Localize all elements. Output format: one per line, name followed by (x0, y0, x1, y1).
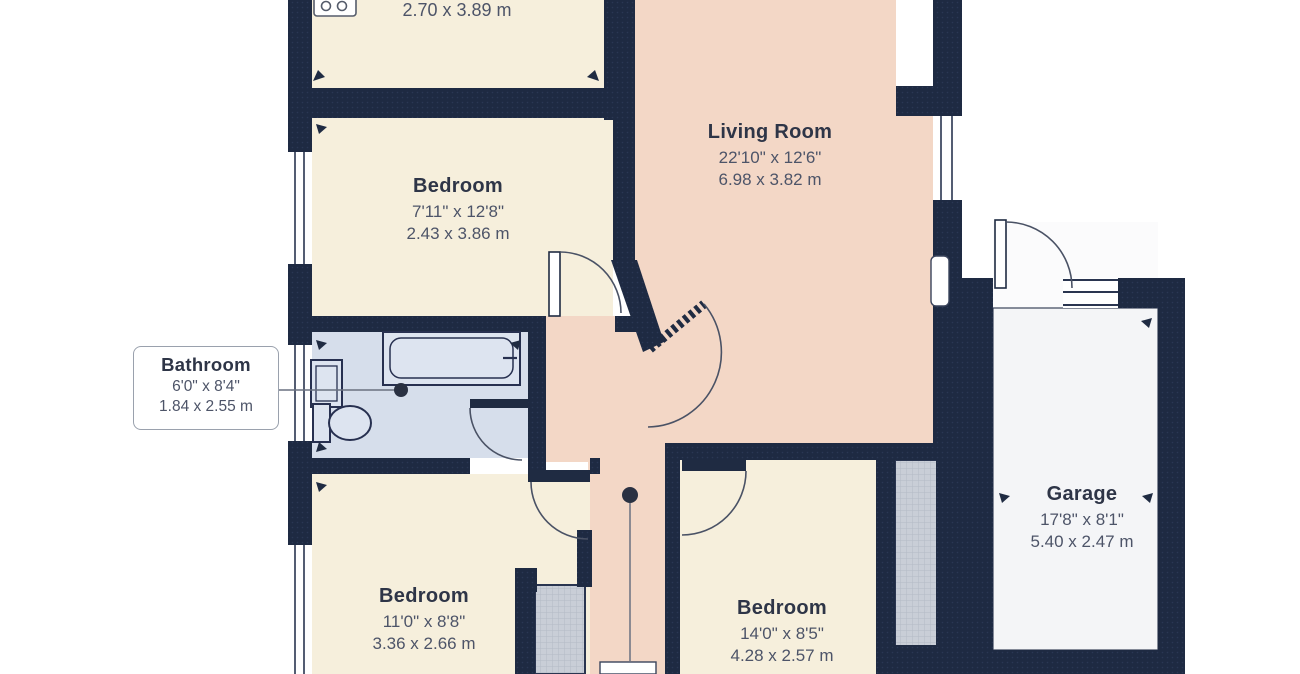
wall-kitchen-south (288, 88, 635, 118)
wall-bathroom-south-a (288, 458, 470, 474)
wall-east-upper (933, 0, 962, 443)
window-bedroom2 (288, 545, 312, 674)
floorplan-canvas: 2.70 x 3.89 m Living Room 22'10" x 12'6"… (0, 0, 1300, 674)
door-leaf-bedroom1 (549, 252, 560, 316)
exterior-notch (896, 0, 933, 86)
window-livingroom (933, 116, 962, 200)
room-bedroom1-floor (312, 118, 613, 316)
wall-bedroom2-east (515, 585, 535, 674)
wall-garage-east (1158, 278, 1185, 674)
bathroom-metric: 1.84 x 2.55 m (134, 397, 278, 417)
bathroom-label: Bathroom 6'0" x 8'4" 1.84 x 2.55 m (133, 346, 279, 430)
hall-leader-dot (622, 487, 638, 503)
wardrobe-left (535, 585, 585, 674)
wall-corridor-east (665, 443, 680, 674)
room-garage-floor (993, 308, 1158, 650)
wall-bedroom3-east (876, 460, 895, 674)
wall-east-lower (936, 443, 962, 674)
floorplan-drawing (0, 0, 1300, 674)
door-recess-living-east (931, 256, 949, 306)
door-leaf-bedroom3 (682, 460, 746, 471)
wardrobe-right (895, 460, 938, 648)
wall-garage-south (962, 650, 1185, 674)
window-bedroom1 (288, 152, 312, 264)
toilet-bowl (329, 406, 371, 440)
wall-chimney-stub (896, 86, 937, 116)
bathroom-name: Bathroom (134, 354, 278, 375)
door-leaf-bathroom (470, 399, 528, 408)
wall-hall-stub (615, 316, 643, 332)
bathroom-leader-dot (394, 383, 408, 397)
wall-bathroom-east (528, 316, 546, 476)
window-bathroom (288, 345, 312, 441)
door-leaf-bedroom2 (528, 470, 590, 482)
room-bedroom3-floor (680, 460, 876, 674)
hob-icon (314, 0, 356, 16)
wall-garage-west (962, 278, 993, 674)
wall-living-south (665, 443, 962, 460)
bathroom-imperial: 6'0" x 8'4" (134, 377, 278, 397)
toilet-cistern (313, 404, 330, 442)
kitchen-label-metric: 2.70 x 3.89 m (402, 0, 511, 21)
wall-living-west (613, 0, 635, 266)
door-leaf-garage (995, 220, 1006, 288)
wall-bedroom1-south (288, 316, 546, 332)
wall-bathroom-south-b (590, 458, 600, 474)
door-front-partial (600, 662, 656, 674)
bathtub (383, 332, 520, 385)
